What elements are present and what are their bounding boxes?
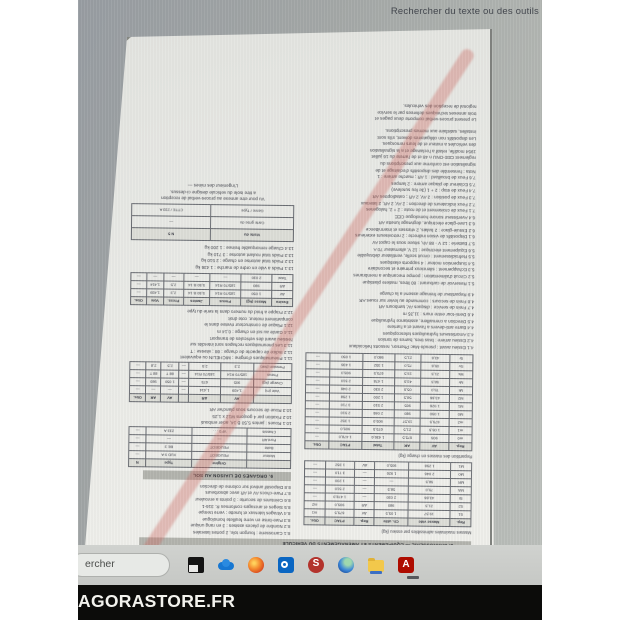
doc-table-cell: 2 046: [408, 470, 451, 479]
doc-table-cell: Ms: [449, 371, 472, 379]
doc-table-cell: 1,414: [188, 387, 220, 395]
doc-table-cell: N: [129, 459, 147, 467]
doc-table-cell: —: [129, 443, 147, 451]
doc-table-cell: —: [304, 485, 325, 493]
doc-table-cell: 58,5: [375, 486, 408, 494]
doc-table-cell: Total: [272, 274, 293, 282]
doc-table-cell: —: [304, 477, 325, 485]
doc-table-cell: —: [305, 401, 329, 409]
doc-table-cell: AV: [272, 290, 293, 298]
doc-table-cell: 185/70 R14: [188, 371, 220, 379]
doc-table-caption: Masses maximales admissibles par essieu …: [303, 527, 471, 535]
doc-table-cell: —: [179, 363, 189, 371]
doc-table-cell: 675,5: [394, 434, 420, 442]
doc-table-cell: BE 3: [146, 443, 191, 452]
doc-table-cell: 1,439: [146, 289, 163, 297]
doc-table-row: Carte grise du—: [131, 216, 293, 230]
doc-table-cell: 675,5: [420, 418, 448, 426]
doc-table-cell: —: [129, 386, 145, 394]
doc-table-cell: —: [130, 378, 146, 386]
doc-table-cell: Total: [361, 441, 394, 449]
windows-taskbar: ercher: [78, 545, 542, 585]
doc-table-cell: —: [305, 409, 329, 417]
doc-table-cell: 43,6: [395, 378, 421, 386]
doc-table-cell: 19,5: [395, 370, 421, 378]
doc-table-cell: Moteur: [247, 452, 291, 461]
doc-table-cell: M0: [449, 411, 472, 419]
doc-table-cell: Obs.: [304, 517, 325, 525]
firefox-icon[interactable]: [248, 557, 264, 573]
doc-table-cell: —: [306, 377, 330, 385]
doc-table-cell: 2,5: [164, 281, 184, 289]
doc-table-cell: 75,0: [395, 362, 421, 370]
taskbar-icons: [188, 557, 414, 573]
doc-table-cell: Rep.: [450, 519, 471, 527]
active-app-indicator: [407, 576, 419, 579]
doc-table-cell: 88 T: [161, 370, 179, 378]
doc-table-cell: AV: [420, 442, 448, 450]
doc-table-cell: 1,414: [146, 281, 163, 289]
doc-table-cell: —: [354, 469, 375, 477]
doc-table-cell: 980: [375, 502, 408, 510]
doc-table-cell: 1 436: [330, 361, 363, 369]
doc-table-cell: Mr: [449, 379, 472, 387]
doc-table-cell: 1 050: [241, 290, 272, 298]
doc-table-cell: —: [305, 385, 329, 393]
doc-table-cell: Masse vide: [407, 518, 450, 527]
doc-table-cell: 905: [420, 434, 448, 442]
task-view-icon[interactable]: [188, 557, 204, 573]
doc-table-cell: —: [305, 425, 329, 433]
doc-table-cell: 2,5: [189, 363, 221, 371]
doc-table-cell: 21,5: [395, 354, 421, 362]
doc-table-cell: AR: [394, 442, 420, 450]
doc-table-cell: 905,0: [330, 369, 363, 377]
doc-table-caption: Repartition des masses en charge (kg): [304, 451, 472, 459]
doc-table-cell: 1 478,0: [325, 493, 354, 501]
doc-table-cell: Visite du: [211, 229, 294, 242]
doc-table-cell: 1 200: [325, 477, 354, 485]
doc-table-cell: Chassis: [247, 428, 291, 437]
doc-table-cell: N 5: [131, 228, 211, 241]
doc-paragraph-block: 10.1 Roues : jantes 5,50 B 14, acier emb…: [129, 405, 292, 427]
doc-table-cell: 58,5: [408, 478, 451, 487]
doc-table-cell: Type: [146, 459, 191, 468]
doc-table-cell: Essieu: [272, 298, 293, 306]
doc-table-cell: —: [179, 371, 189, 379]
onedrive-cloud-icon[interactable]: [218, 557, 234, 573]
doc-table-cell: 2 510: [325, 485, 354, 493]
doc-table-cell: 58,5: [395, 394, 421, 402]
doc-table-cell: Obs.: [129, 394, 145, 402]
doc-table-cell: —: [131, 280, 147, 288]
doc-table-cell: 2 510: [329, 377, 362, 385]
doc-table-cell: 21,5: [394, 426, 420, 434]
doc-table-cell: 185/70 R14: [210, 281, 241, 289]
doc-table-cell: —: [131, 272, 147, 280]
pdf-page[interactable]: 8. CARROSSERIE — EQUIPEMENTS ET AMENAGEM…: [78, 0, 542, 620]
doc-table-cell: —: [131, 216, 211, 229]
doc-table-cell: 675,5: [325, 509, 354, 517]
doc-table-cell: —: [210, 273, 241, 281]
doc-table-cell: 2,8: [146, 362, 161, 370]
doc-table-cell: S1: [450, 511, 471, 519]
doc-table-cell: 1 050: [330, 353, 363, 361]
doc-table-cell: M1: [449, 403, 472, 411]
doc-table-cell: CTTE / 233 A: [132, 204, 212, 217]
doc-table-cell: —: [129, 435, 147, 443]
doc-table-cell: 1 258: [408, 462, 451, 471]
doc-table-cell: AR: [188, 395, 220, 403]
doc-table-masses-essieu: Rep.Masse videCh. utileRep.PTACObs.S119,…: [303, 460, 472, 527]
doc-section-band: 9. ORGANES DE LIAISON AU SOL: [143, 471, 291, 482]
doc-paragraph-block: 8.1 Carrosserie : fourgon tole, 2 portes…: [127, 481, 291, 536]
doc-table-row: Genre / TypeCTTE / 233 A: [132, 204, 294, 218]
doc-table-cell: Sr: [449, 355, 472, 363]
doc-table-cell: 905,0: [362, 417, 395, 425]
doc-table-cell: XUD 9 A: [146, 451, 191, 460]
taskbar-search-text: ercher: [85, 558, 169, 570]
doc-table-cell: 1 050: [421, 410, 449, 418]
doc-table-cell: 2,3: [221, 363, 253, 371]
doc-table-cell: —: [129, 451, 147, 459]
doc-table-cell: —: [375, 478, 408, 486]
doc-table-cell: [179, 395, 189, 403]
file-explorer-icon[interactable]: [368, 560, 384, 572]
doc-table-cell: AV: [354, 461, 375, 469]
doc-table-cell: 21,5: [408, 502, 451, 511]
doc-table-cell: 980: [394, 410, 420, 418]
doc-table-cell: 2 046: [329, 385, 362, 393]
doc-table-cell: —: [304, 493, 325, 501]
doc-table-cell: —: [179, 379, 189, 387]
doc-table-cell: 1 352: [326, 461, 355, 469]
doc-table-cell: —: [354, 493, 375, 501]
doc-table-cell: 21,5: [421, 370, 449, 378]
doc-table-cell: 2 030: [362, 385, 395, 393]
doc-table-cell: AV: [161, 394, 179, 402]
doc-table-cell: 75,0: [408, 486, 451, 495]
doc-table-cell: AV: [354, 509, 375, 517]
doc-table-cell: —: [147, 273, 164, 281]
doc-table-cell: 3 710: [326, 469, 355, 477]
doc-table-cell: 05,6: [395, 386, 421, 394]
doc-table-cell: 1 05,5: [374, 510, 407, 518]
doc-table-cell: 88 T: [146, 370, 161, 378]
doc-table-cell: —: [354, 477, 375, 485]
doc-table-cell: 2 046: [362, 409, 395, 417]
doc-table-cell: 1 352: [362, 361, 395, 369]
doc-table-cell: 5,50 B 14: [183, 289, 210, 297]
doc-table-cell: m1: [304, 509, 325, 517]
doc-column-right: 8.1 Carrosserie : fourgon tole, 2 portes…: [127, 99, 295, 536]
doc-table-cell: 19,57: [394, 418, 420, 426]
doc-table-cell: 43,66: [408, 494, 451, 503]
doc-table-cell: AR: [354, 501, 375, 509]
doc-table-cell: —: [164, 273, 184, 281]
doc-table-cell: —: [161, 386, 179, 394]
doc-table-cell: 1 352: [329, 417, 362, 425]
doc-table-cell: m2: [449, 419, 472, 427]
doc-table-cell: 905: [395, 402, 421, 410]
doc-table-repartition: Rep.AVARTotalPTACObs.m0905675,51 436,61 …: [304, 352, 473, 451]
doc-table-cell: AR: [272, 282, 293, 290]
doc-table-cell: 675,5: [362, 425, 395, 433]
doc-table-cell: [253, 396, 292, 404]
doc-table-cell: Obs.: [305, 441, 329, 449]
doc-table-cell: 2 030: [241, 274, 272, 282]
doc-table-cell: 1 478: [362, 377, 395, 385]
doc-table-cell: AR: [146, 394, 161, 402]
doc-table-cell: M0: [451, 471, 472, 479]
doc-table-cell: 1 258: [329, 393, 362, 401]
doc-table-cell: —: [183, 273, 210, 281]
doc-table-cell: 980: [146, 378, 161, 386]
doc-table-cell: 905,0: [329, 425, 362, 433]
doc-table-cell: Masse (kg): [241, 298, 272, 306]
doc-table-cell: Pneus: [210, 297, 241, 305]
doc-table-cell: —: [130, 370, 146, 378]
doc-table-cell: —: [306, 353, 330, 361]
doc-table-visite: Visite duN 5Carte grise du—Genre / TypeC…: [131, 203, 294, 242]
doc-table-cell: 233 A: [146, 427, 191, 436]
pdf-find-bar-label[interactable]: Rechercher du texte ou des outils: [391, 6, 539, 17]
doc-table-cell: —: [305, 393, 329, 401]
doc-table-cell: —: [146, 435, 191, 444]
doc-table-cell: m1: [449, 427, 472, 435]
doc-table-cell: 05,6: [421, 362, 449, 370]
doc-table-cell: 1 926: [375, 470, 408, 478]
doc-table-cell: —: [354, 485, 375, 493]
doc-table-cell: 185/70 R14: [210, 289, 241, 297]
doc-table-cell: Pont AR: [247, 436, 291, 445]
doc-table-cell: —: [306, 361, 330, 369]
doc-table-cell: —: [304, 469, 325, 477]
doc-table-cell: PTAC: [329, 441, 362, 449]
taskbar-search-input[interactable]: ercher: [78, 553, 170, 577]
listing-photo-canvas: Rechercher du texte ou des outils 8. CAR…: [0, 0, 620, 620]
screen-photo: Rechercher du texte ou des outils 8. CAR…: [78, 0, 542, 620]
doc-table-cell: —: [306, 369, 330, 377]
doc-table-cell: 980: [241, 282, 272, 290]
doc-table-cell: m2: [304, 501, 325, 509]
doc-table-cell: Obs.: [131, 296, 147, 304]
doc-table-cell: 1 926: [421, 402, 449, 410]
doc-table-cell: 43,6: [421, 354, 449, 362]
doc-table-cell: 58,5: [421, 378, 449, 386]
doc-table-cell: 2 510: [329, 409, 362, 417]
doc-table-cell: —: [130, 362, 146, 370]
doc-table-cell: M2: [449, 395, 472, 403]
doc-table-cell: [247, 460, 291, 469]
doc-table-cell: MA: [451, 487, 472, 495]
doc-table-cell: —: [131, 288, 147, 296]
doc-table-pneumatiques: EssieuMasse (kg)PneusJantesPress.VoieObs…: [130, 272, 293, 307]
doc-table-cell: 675,5: [362, 369, 395, 377]
doc-table-cell: —: [146, 386, 161, 394]
doc-table-cell: M1: [451, 463, 472, 471]
outlook-icon[interactable]: [278, 557, 294, 573]
acrobat-icon[interactable]: [398, 557, 414, 573]
doc-table-cell: —: [179, 387, 189, 395]
doc-table-cell: Rep.: [354, 517, 375, 525]
doc-table-cell: 905,0: [325, 501, 354, 509]
doc-table-cell: S2: [450, 503, 471, 511]
doc-table-cell: 3 710: [329, 401, 362, 409]
doc-table-row: Visite duN 5: [131, 228, 293, 242]
watermark-band: AGORASTORE.FR: [78, 585, 542, 620]
doc-table-cell: Carte grise du: [211, 217, 294, 230]
doc-table-cell: Rep.: [448, 443, 471, 451]
doc-table-cell: —: [305, 433, 329, 441]
doc-table-cell: Mt: [449, 387, 472, 395]
doc-table-cell: 1 05,5: [420, 426, 448, 434]
doc-table-cell: 19,57: [408, 510, 451, 519]
doc-table-cell: 75,0: [421, 386, 449, 394]
doc-footer-block: Vu pour etre annexe au proces-verbal de …: [131, 181, 294, 203]
doc-table-cell: Genre / Type: [211, 205, 294, 218]
doc-table-cell: 5,50 B 14: [183, 281, 210, 289]
doc-table-cell: 2 030: [375, 494, 408, 502]
doc-table-cell: 185/70 R14: [221, 371, 253, 379]
doc-table-cell: 675: [188, 379, 220, 387]
doc-table-cell: 43,66: [421, 394, 449, 402]
doc-table-cell: 1 478,0: [329, 433, 362, 441]
doc-paragraph-block: 4.1 Essieu avant : pseudo-Mac Pherson, r…: [306, 289, 475, 350]
doc-table-cell: 980,0: [362, 353, 395, 361]
doc-table-cell: PTAC: [325, 517, 354, 525]
doc-table-cell: St: [451, 495, 472, 503]
red-app-icon[interactable]: [308, 557, 324, 573]
doc-table-cell: 2,3: [163, 289, 183, 297]
doc-table-cell: Boite: [247, 444, 291, 453]
doc-table-cell: —: [305, 461, 326, 469]
doc-table-cell: —: [305, 417, 329, 425]
doc-paragraph-block: 13.1 Poids a vide en ordre de marche : 1…: [130, 242, 293, 270]
doc-table-cell: 905,0: [375, 462, 408, 470]
doc-table-cell: 1 436,6: [361, 433, 394, 441]
doc-table-cell: Ch. utile: [374, 518, 407, 526]
doc-table-cell: 1 050: [161, 378, 179, 386]
doc-table-cell: MR: [451, 479, 472, 487]
edge-sphere-icon[interactable]: [338, 557, 354, 573]
doc-footer-block: Le present proces-verbal comporte deux p…: [308, 101, 476, 123]
page-edge-line: [490, 29, 492, 620]
agorastore-watermark: AGORASTORE.FR: [78, 591, 542, 612]
doc-table-cell: Sv: [449, 363, 472, 371]
doc-table-cell: Jantes: [183, 297, 210, 305]
doc-table-cell: 1 200: [362, 393, 395, 401]
doc-table-cell: 2,5: [161, 362, 179, 370]
doc-table-cell: —: [129, 427, 147, 435]
doc-table-cell: m0: [449, 435, 472, 443]
doc-table-cell: 2 510: [362, 401, 395, 409]
doc-table-cell: Press.: [163, 297, 183, 305]
doc-table-cell: Voie: [146, 297, 163, 305]
